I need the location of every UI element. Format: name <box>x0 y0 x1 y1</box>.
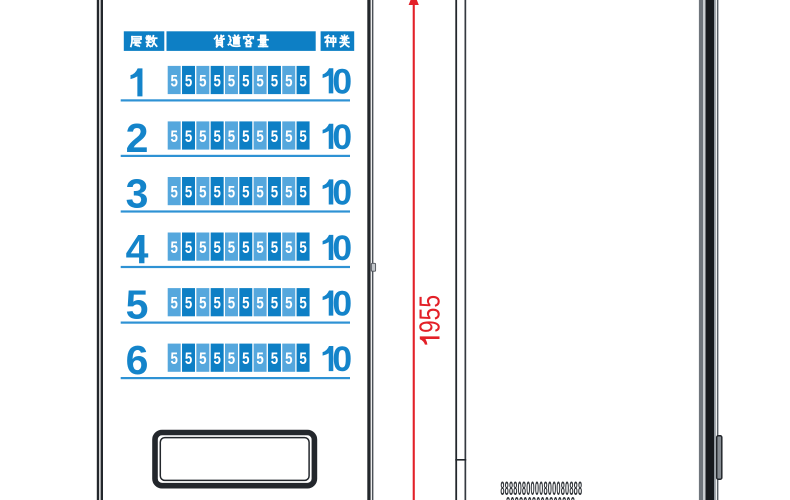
svg-text:5: 5 <box>228 72 236 91</box>
svg-text:5: 5 <box>285 294 293 313</box>
svg-text:0: 0 <box>332 339 352 379</box>
svg-text:5: 5 <box>271 183 279 202</box>
svg-text:5: 5 <box>256 183 264 202</box>
svg-text:5: 5 <box>285 350 293 369</box>
svg-text:5: 5 <box>171 72 179 91</box>
svg-text:0: 0 <box>332 173 352 213</box>
svg-text:5: 5 <box>213 239 221 258</box>
svg-text:3: 3 <box>126 171 149 217</box>
svg-text:5: 5 <box>285 183 293 202</box>
svg-text:5: 5 <box>171 294 179 313</box>
svg-text:0: 0 <box>332 117 352 157</box>
svg-text:5: 5 <box>228 127 236 146</box>
svg-text:5: 5 <box>213 294 221 313</box>
svg-text:5: 5 <box>256 239 264 258</box>
svg-text:5: 5 <box>199 127 207 146</box>
svg-text:5: 5 <box>171 350 179 369</box>
svg-text:5: 5 <box>185 294 193 313</box>
svg-text:5: 5 <box>256 72 264 91</box>
svg-text:5: 5 <box>242 127 250 146</box>
svg-text:5: 5 <box>185 127 193 146</box>
svg-text:5: 5 <box>242 183 250 202</box>
svg-text:5: 5 <box>285 127 293 146</box>
svg-text:5: 5 <box>271 350 279 369</box>
svg-text:5: 5 <box>299 72 307 91</box>
svg-text:5: 5 <box>242 350 250 369</box>
svg-text:5: 5 <box>171 239 179 258</box>
svg-text:5: 5 <box>256 294 264 313</box>
svg-text:5: 5 <box>126 282 149 328</box>
svg-text:5: 5 <box>185 72 193 91</box>
svg-text:2: 2 <box>126 115 149 161</box>
svg-text:5: 5 <box>228 294 236 313</box>
svg-text:955: 955 <box>415 295 446 333</box>
svg-text:5: 5 <box>271 72 279 91</box>
svg-text:5: 5 <box>171 183 179 202</box>
svg-text:5: 5 <box>199 183 207 202</box>
svg-text:5: 5 <box>299 183 307 202</box>
svg-text:5: 5 <box>213 350 221 369</box>
svg-text:5: 5 <box>299 127 307 146</box>
svg-text:5: 5 <box>299 350 307 369</box>
svg-text:0: 0 <box>332 284 352 324</box>
svg-text:5: 5 <box>271 294 279 313</box>
svg-text:5: 5 <box>299 294 307 313</box>
svg-text:5: 5 <box>256 127 264 146</box>
svg-text:6: 6 <box>126 337 149 383</box>
svg-text:5: 5 <box>199 294 207 313</box>
svg-text:0: 0 <box>332 61 352 101</box>
svg-text:5: 5 <box>271 127 279 146</box>
svg-text:5: 5 <box>299 239 307 258</box>
svg-text:4: 4 <box>126 226 149 272</box>
svg-text:5: 5 <box>199 239 207 258</box>
svg-text:5: 5 <box>285 72 293 91</box>
svg-text:5: 5 <box>228 239 236 258</box>
svg-text:5: 5 <box>185 239 193 258</box>
svg-text:5: 5 <box>242 72 250 91</box>
svg-text:8088008000800808: 8088008000800808 <box>506 495 575 500</box>
svg-text:5: 5 <box>213 72 221 91</box>
svg-text:5: 5 <box>199 350 207 369</box>
svg-text:0: 0 <box>332 228 352 268</box>
svg-text:5: 5 <box>271 239 279 258</box>
svg-text:5: 5 <box>228 183 236 202</box>
svg-text:5: 5 <box>171 127 179 146</box>
svg-text:5: 5 <box>185 183 193 202</box>
svg-text:5: 5 <box>285 239 293 258</box>
svg-text:5: 5 <box>242 294 250 313</box>
svg-text:5: 5 <box>185 350 193 369</box>
svg-text:5: 5 <box>213 127 221 146</box>
svg-text:5: 5 <box>213 183 221 202</box>
svg-text:5: 5 <box>242 239 250 258</box>
svg-text:5: 5 <box>199 72 207 91</box>
svg-text:5: 5 <box>228 350 236 369</box>
svg-text:5: 5 <box>256 350 264 369</box>
